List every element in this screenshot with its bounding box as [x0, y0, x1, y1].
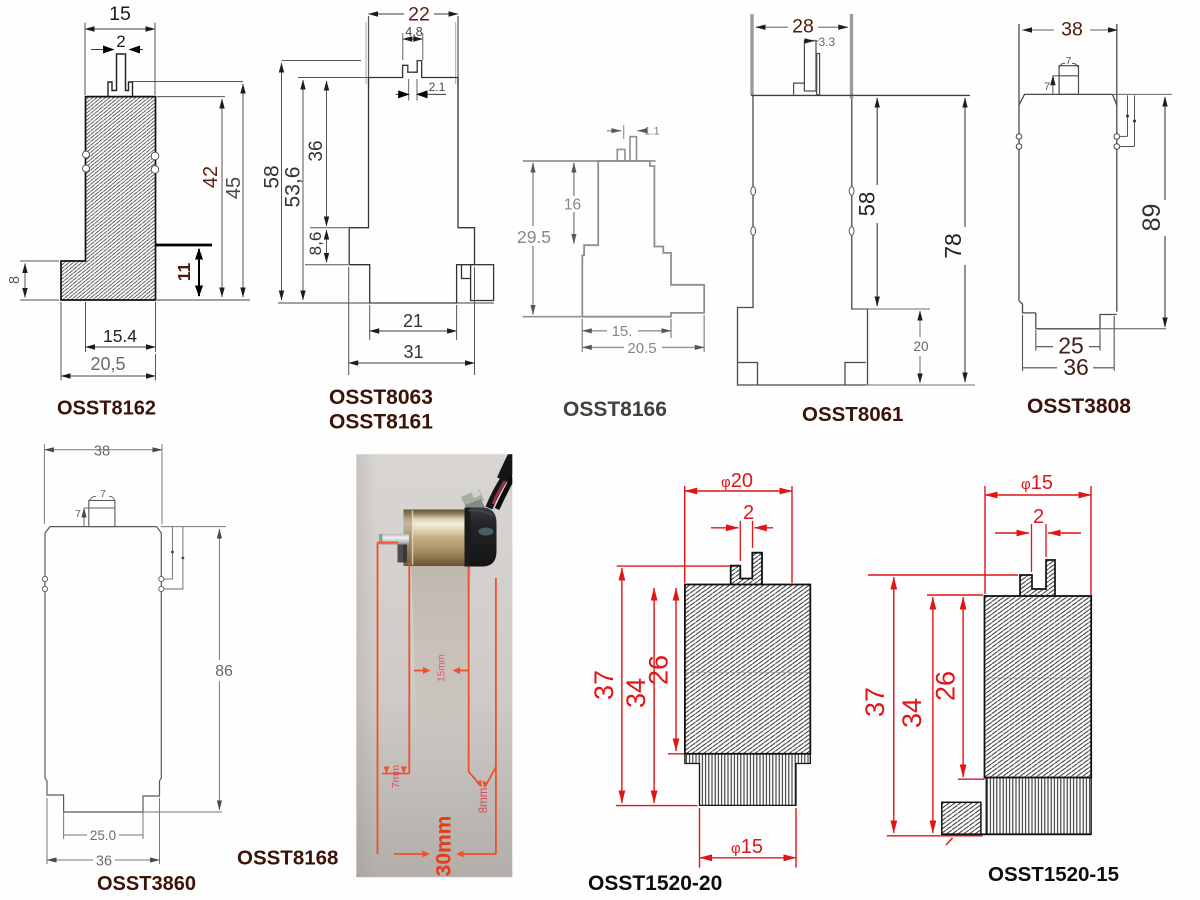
svg-text:OSST8166: OSST8166 [563, 398, 667, 421]
svg-text:36: 36 [306, 140, 327, 161]
svg-text:38: 38 [94, 444, 110, 460]
svg-text:OSST8168: OSST8168 [237, 847, 338, 870]
svg-text:26: 26 [931, 671, 961, 701]
svg-text:16: 16 [564, 197, 581, 214]
svg-text:φ20: φ20 [721, 470, 753, 492]
svg-text:OSST3860: OSST3860 [97, 873, 196, 895]
svg-text:7: 7 [75, 508, 81, 520]
svg-text:28: 28 [792, 16, 814, 38]
svg-text:34: 34 [897, 698, 927, 728]
svg-text:OSST8161: OSST8161 [329, 411, 433, 434]
svg-text:21: 21 [403, 311, 423, 331]
svg-text:8: 8 [7, 276, 23, 284]
svg-text:86: 86 [215, 663, 233, 680]
svg-text:58: 58 [261, 165, 284, 188]
svg-text:31: 31 [403, 342, 423, 362]
svg-text:78: 78 [940, 233, 966, 259]
svg-text:OSST3808: OSST3808 [1027, 395, 1131, 418]
svg-text:45: 45 [223, 177, 245, 199]
svg-text:53,6: 53,6 [282, 167, 305, 208]
svg-text:8,6: 8,6 [306, 232, 325, 256]
svg-text:7: 7 [1066, 55, 1072, 67]
svg-text:8mm: 8mm [478, 788, 490, 814]
svg-text:2: 2 [116, 32, 125, 51]
svg-text:2: 2 [743, 502, 754, 524]
svg-text:4,8: 4,8 [405, 25, 422, 39]
svg-text:37: 37 [589, 670, 619, 700]
svg-text:OSST8162: OSST8162 [57, 398, 156, 420]
svg-text:OSST1520-20: OSST1520-20 [588, 872, 722, 895]
svg-text:58: 58 [855, 192, 880, 216]
svg-text:2.1: 2.1 [429, 80, 446, 94]
svg-text:36: 36 [1063, 354, 1089, 380]
svg-text:11: 11 [174, 262, 194, 281]
svg-text:OSST8061: OSST8061 [802, 403, 903, 426]
svg-text:15.: 15. [612, 323, 633, 340]
svg-text:OSST1520-15: OSST1520-15 [988, 863, 1119, 886]
svg-text:1.1: 1.1 [644, 126, 659, 138]
svg-text:7mm: 7mm [390, 765, 402, 789]
svg-text:15: 15 [109, 3, 131, 25]
svg-text:26: 26 [644, 655, 674, 685]
svg-text:7: 7 [1044, 81, 1050, 93]
svg-text:29.5: 29.5 [517, 227, 551, 247]
svg-text:25.0: 25.0 [90, 828, 116, 843]
svg-text:15mm: 15mm [437, 654, 448, 682]
svg-text:20.5: 20.5 [627, 340, 656, 357]
svg-text:φ15: φ15 [731, 836, 763, 858]
svg-text:38: 38 [1061, 19, 1083, 41]
svg-text:15.4: 15.4 [103, 326, 137, 346]
svg-text:2: 2 [1033, 506, 1044, 528]
svg-text:φ15: φ15 [1021, 472, 1053, 494]
svg-text:42: 42 [200, 166, 222, 188]
svg-text:22: 22 [408, 4, 430, 26]
svg-text:37: 37 [860, 687, 890, 717]
svg-text:20,5: 20,5 [90, 354, 125, 374]
svg-text:3.3: 3.3 [819, 35, 836, 49]
svg-text:89: 89 [1138, 204, 1166, 232]
svg-text:20: 20 [913, 339, 928, 354]
svg-text:36: 36 [96, 854, 112, 870]
svg-text:30mm: 30mm [433, 816, 456, 877]
svg-text:7: 7 [100, 488, 106, 500]
svg-text:OSST8063: OSST8063 [329, 386, 433, 409]
